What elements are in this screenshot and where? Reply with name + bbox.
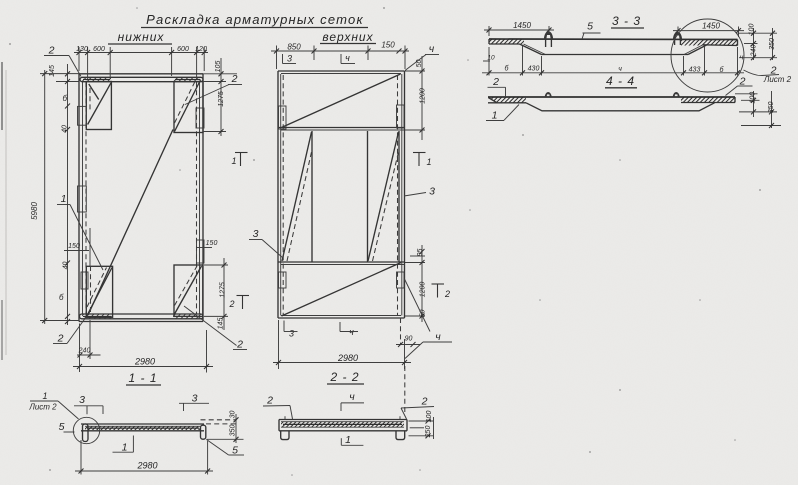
svg-text:верхних: верхних	[322, 30, 373, 44]
svg-text:3: 3	[79, 394, 85, 406]
svg-text:30: 30	[230, 411, 237, 419]
svg-text:150: 150	[68, 243, 80, 250]
svg-text:1: 1	[492, 110, 498, 122]
svg-text:1200: 1200	[420, 282, 427, 298]
svg-text:120: 120	[195, 46, 207, 53]
svg-text:95: 95	[417, 249, 424, 257]
svg-text:2: 2	[236, 339, 243, 351]
svg-text:145: 145	[49, 65, 56, 77]
svg-text:145: 145	[218, 318, 225, 330]
svg-text:105: 105	[215, 61, 222, 73]
svg-text:3: 3	[289, 329, 294, 339]
svg-text:600: 600	[177, 46, 189, 53]
svg-text:Лист 2: Лист 2	[763, 75, 792, 84]
svg-text:2: 2	[57, 333, 64, 345]
svg-text:1275: 1275	[220, 282, 227, 298]
svg-text:150: 150	[381, 41, 395, 50]
svg-text:1275: 1275	[218, 91, 225, 107]
svg-text:1450: 1450	[702, 22, 720, 31]
svg-text:240: 240	[78, 348, 91, 355]
svg-text:350: 350	[769, 38, 776, 50]
svg-text:2980: 2980	[337, 353, 358, 363]
svg-text:1450: 1450	[513, 21, 531, 30]
svg-text:150: 150	[206, 240, 218, 247]
svg-text:100: 100	[750, 92, 757, 104]
svg-text:ч: ч	[435, 331, 441, 343]
svg-text:2: 2	[421, 396, 428, 408]
svg-text:ч: ч	[740, 55, 744, 62]
svg-text:2: 2	[48, 45, 55, 57]
svg-text:3: 3	[192, 393, 198, 405]
svg-text:240: 240	[751, 45, 758, 58]
svg-text:2: 2	[229, 299, 235, 309]
svg-text:1: 1	[232, 156, 237, 166]
svg-text:433: 433	[689, 67, 701, 74]
svg-text:1: 1	[122, 442, 128, 454]
svg-text:40: 40	[62, 125, 69, 133]
svg-text:ч: ч	[345, 53, 350, 63]
svg-text:5: 5	[587, 21, 593, 33]
svg-text:90: 90	[405, 336, 413, 343]
svg-text:б: б	[59, 293, 64, 302]
svg-text:430: 430	[528, 66, 540, 73]
svg-text:850: 850	[287, 43, 301, 52]
svg-text:1: 1	[345, 434, 351, 446]
svg-text:2980: 2980	[136, 461, 157, 471]
svg-text:1: 1	[427, 157, 432, 167]
svg-text:Раскладка арматурных сеток: Раскладка арматурных сеток	[146, 12, 364, 27]
svg-text:1 - 1: 1 - 1	[128, 371, 157, 385]
svg-text:2980: 2980	[134, 357, 155, 367]
svg-text:Лист 2: Лист 2	[28, 403, 57, 412]
svg-text:3: 3	[429, 186, 435, 198]
svg-text:3: 3	[287, 54, 292, 64]
svg-text:1: 1	[42, 391, 47, 401]
svg-text:4 - 4: 4 - 4	[606, 74, 635, 88]
svg-text:350: 350	[230, 425, 237, 437]
svg-text:40: 40	[63, 262, 70, 270]
svg-text:2: 2	[492, 76, 499, 88]
svg-text:5980: 5980	[30, 202, 39, 220]
svg-text:100: 100	[749, 24, 756, 36]
svg-text:5: 5	[59, 421, 65, 433]
svg-text:2: 2	[231, 73, 238, 85]
svg-text:нижних: нижних	[118, 30, 165, 44]
svg-text:ч: ч	[429, 43, 435, 55]
svg-text:3: 3	[253, 228, 259, 240]
svg-text:130: 130	[76, 46, 88, 53]
svg-text:1: 1	[61, 193, 67, 205]
svg-text:б: б	[63, 94, 68, 103]
svg-text:2: 2	[444, 289, 450, 299]
svg-text:250: 250	[425, 426, 432, 439]
svg-text:50: 50	[416, 60, 423, 68]
svg-text:100: 100	[426, 411, 433, 423]
svg-text:ч: ч	[349, 391, 355, 403]
svg-text:600: 600	[93, 46, 105, 53]
svg-text:2: 2	[266, 395, 273, 407]
svg-text:ч: ч	[618, 66, 622, 73]
svg-text:350: 350	[768, 101, 775, 113]
svg-text:1200: 1200	[420, 88, 427, 104]
svg-text:2 - 2: 2 - 2	[329, 370, 359, 384]
svg-text:ч: ч	[349, 327, 354, 337]
svg-text:3 - 3: 3 - 3	[612, 14, 641, 28]
svg-text:10: 10	[487, 55, 495, 62]
